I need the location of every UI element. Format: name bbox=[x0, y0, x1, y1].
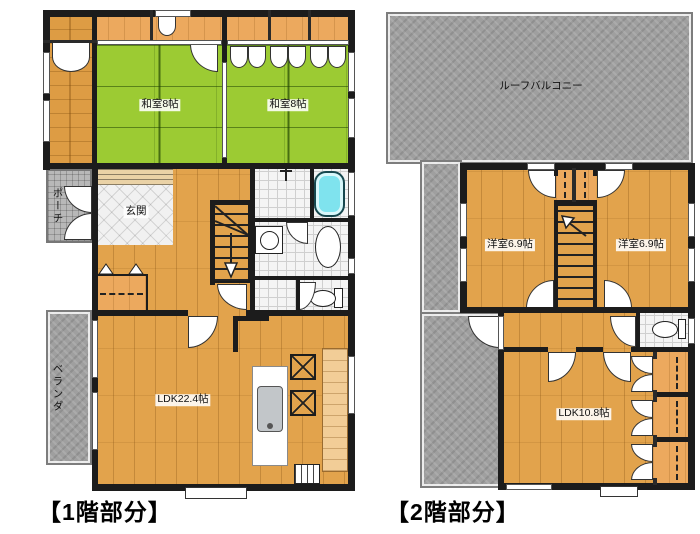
window bbox=[92, 320, 98, 378]
entry-step bbox=[600, 486, 638, 497]
bathtub-icon bbox=[314, 171, 345, 217]
wall bbox=[233, 316, 238, 352]
toilet-tank bbox=[678, 319, 686, 339]
closet-dash bbox=[584, 172, 586, 198]
wall bbox=[688, 163, 695, 313]
window bbox=[348, 172, 355, 216]
window bbox=[460, 248, 467, 282]
wall bbox=[233, 316, 269, 321]
wall bbox=[631, 347, 695, 352]
wall bbox=[636, 313, 640, 349]
room-label-ldk-2f: LDK10.8帖 bbox=[556, 408, 611, 420]
roof-balcony-strip-upper bbox=[420, 160, 462, 314]
wall bbox=[460, 163, 695, 170]
wall bbox=[653, 478, 657, 485]
room-label-porch: ポーチ bbox=[51, 187, 66, 225]
window bbox=[460, 203, 467, 237]
closet-door-arc bbox=[288, 46, 306, 68]
wall bbox=[92, 163, 355, 169]
wall bbox=[250, 218, 355, 222]
room-label-genkan: 玄関 bbox=[124, 206, 149, 218]
toilet-icon bbox=[652, 321, 678, 338]
wall bbox=[576, 347, 603, 352]
closet-door-arc bbox=[248, 46, 266, 68]
kitchen-sink-icon bbox=[257, 386, 283, 432]
balcony-door-opening bbox=[498, 316, 504, 350]
wall bbox=[92, 10, 97, 170]
laundry-tap-icon bbox=[278, 167, 294, 183]
room-label-bedroom-left: 洋室6.9帖 bbox=[485, 239, 535, 251]
floor1-caption: 【1階部分】 bbox=[38, 493, 172, 527]
room-label-veranda: ベランダ bbox=[51, 363, 66, 413]
floorplan-canvas: 和室8帖 和室8帖 玄関 ポーチ ベランダ LDK22.4帖 【1階部分】 bbox=[0, 0, 700, 534]
closet-divider bbox=[572, 168, 576, 202]
window bbox=[527, 163, 555, 170]
door-arc bbox=[158, 16, 176, 36]
window bbox=[348, 258, 355, 274]
room-label-washitsu1: 和室8帖 bbox=[139, 99, 180, 111]
room-label-bedroom-right: 洋室6.9帖 bbox=[616, 239, 666, 251]
window bbox=[605, 163, 633, 170]
window bbox=[688, 203, 695, 237]
wall bbox=[593, 168, 597, 176]
window bbox=[688, 318, 695, 344]
closet-divider bbox=[308, 10, 311, 42]
wall bbox=[92, 310, 188, 316]
room-label-ldk-1f: LDK22.4帖 bbox=[155, 394, 210, 406]
washing-machine-icon bbox=[255, 226, 283, 254]
stove-icon bbox=[290, 354, 316, 380]
closet-dash bbox=[676, 357, 678, 389]
closet-door-arc bbox=[310, 46, 328, 68]
closet-divider bbox=[150, 10, 153, 42]
closet-sliding-door bbox=[227, 40, 349, 45]
stairs-down-arrow-icon bbox=[213, 203, 250, 283]
window bbox=[92, 392, 98, 450]
wall bbox=[593, 200, 597, 313]
closet-dash bbox=[676, 446, 678, 480]
stairs-up-arrow-icon bbox=[558, 208, 594, 244]
window bbox=[688, 248, 695, 282]
closet-door-arc bbox=[328, 46, 346, 68]
window bbox=[348, 52, 355, 92]
wall bbox=[250, 276, 355, 280]
fusuma-partition bbox=[222, 62, 227, 158]
stair-top-closets bbox=[556, 168, 596, 202]
closet-divider bbox=[268, 10, 271, 42]
wall bbox=[653, 437, 695, 442]
wall bbox=[460, 307, 695, 313]
wall bbox=[43, 163, 98, 169]
window bbox=[348, 356, 355, 414]
floor2-caption: 【2階部分】 bbox=[386, 493, 520, 527]
closet-divider bbox=[43, 40, 97, 43]
room-label-roof-balcony: ルーフバルコニー bbox=[497, 81, 584, 93]
window bbox=[348, 98, 355, 138]
folding-door-icon bbox=[98, 263, 146, 275]
genkan-step bbox=[97, 169, 173, 185]
wall bbox=[460, 163, 467, 313]
closet-dash bbox=[564, 172, 566, 198]
closet-door-arc bbox=[270, 46, 288, 68]
wall bbox=[250, 163, 255, 315]
wall bbox=[504, 347, 548, 352]
wall bbox=[554, 200, 558, 313]
closet-dash bbox=[100, 293, 143, 295]
washbasin-icon bbox=[315, 226, 341, 268]
window bbox=[43, 100, 50, 142]
wall bbox=[653, 435, 657, 447]
appliance-icon bbox=[294, 464, 320, 484]
closet-door-arc bbox=[230, 46, 248, 68]
door-arc bbox=[52, 42, 90, 72]
kitchen-cabinet bbox=[322, 348, 348, 472]
window bbox=[43, 52, 50, 94]
wall bbox=[653, 392, 695, 397]
stove-icon bbox=[290, 390, 316, 416]
window bbox=[155, 10, 191, 17]
room-label-washitsu2: 和室8帖 bbox=[267, 99, 308, 111]
wall bbox=[653, 390, 657, 402]
closet-dash bbox=[676, 401, 678, 433]
wall bbox=[310, 167, 314, 218]
closet-sliding-door bbox=[97, 40, 222, 45]
entry-step bbox=[185, 487, 247, 499]
window bbox=[506, 484, 552, 490]
engawa-corridor bbox=[43, 10, 97, 170]
wall bbox=[653, 352, 657, 359]
